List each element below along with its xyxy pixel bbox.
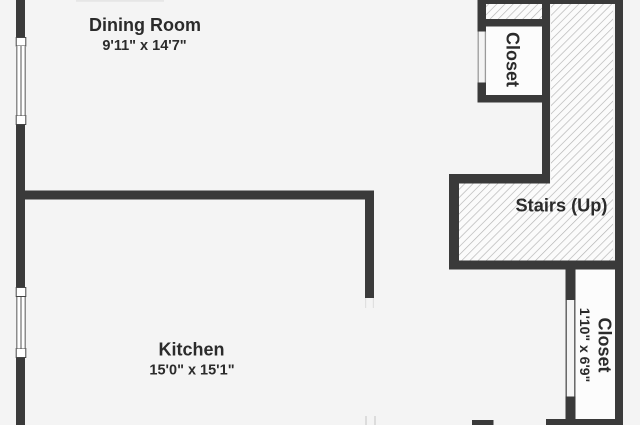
- svg-text:Closet: Closet: [595, 317, 615, 372]
- svg-text:Closet: Closet: [503, 32, 523, 87]
- svg-text:9'11" x 14'7": 9'11" x 14'7": [102, 38, 186, 54]
- svg-text:Stairs (Up): Stairs (Up): [516, 196, 608, 216]
- svg-text:1'10" x 6'9": 1'10" x 6'9": [577, 308, 593, 382]
- svg-text:Dining Room: Dining Room: [89, 15, 201, 35]
- svg-text:15'0" x 15'1": 15'0" x 15'1": [149, 363, 234, 379]
- svg-text:Kitchen: Kitchen: [158, 340, 224, 360]
